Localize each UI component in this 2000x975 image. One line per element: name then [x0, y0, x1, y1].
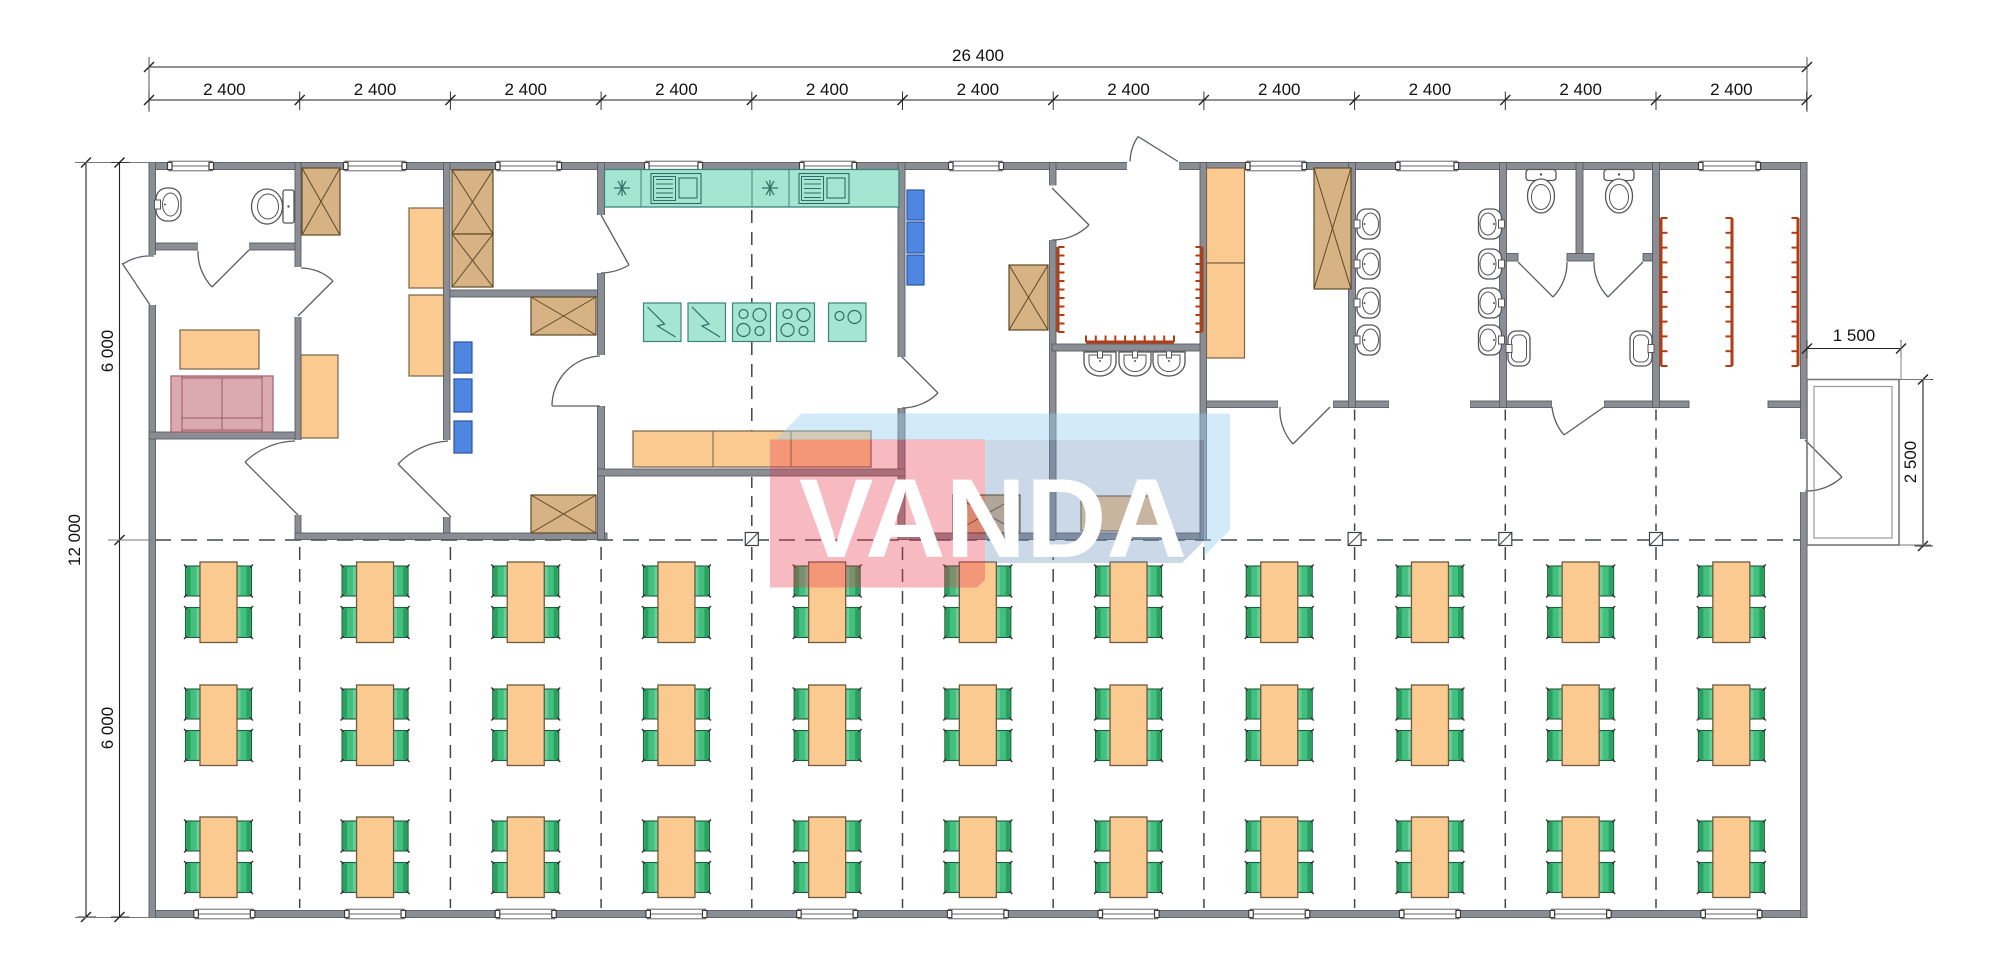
- svg-text:2 400: 2 400: [203, 80, 246, 99]
- svg-text:2 400: 2 400: [1258, 80, 1301, 99]
- svg-text:6 000: 6 000: [98, 330, 117, 373]
- svg-text:2 400: 2 400: [957, 80, 1000, 99]
- svg-text:26 400: 26 400: [952, 46, 1004, 65]
- svg-text:1 500: 1 500: [1833, 326, 1876, 345]
- svg-text:2 400: 2 400: [655, 80, 698, 99]
- svg-text:2 400: 2 400: [354, 80, 397, 99]
- svg-text:6 000: 6 000: [98, 707, 117, 750]
- svg-text:12 000: 12 000: [65, 514, 84, 566]
- svg-text:2 400: 2 400: [1409, 80, 1452, 99]
- svg-text:2 400: 2 400: [504, 80, 547, 99]
- svg-text:2 400: 2 400: [806, 80, 849, 99]
- svg-text:2 400: 2 400: [1559, 80, 1602, 99]
- svg-text:2 400: 2 400: [1107, 80, 1150, 99]
- svg-text:VANDA: VANDA: [799, 456, 1187, 581]
- svg-text:2 500: 2 500: [1901, 441, 1920, 484]
- svg-text:2 400: 2 400: [1710, 80, 1753, 99]
